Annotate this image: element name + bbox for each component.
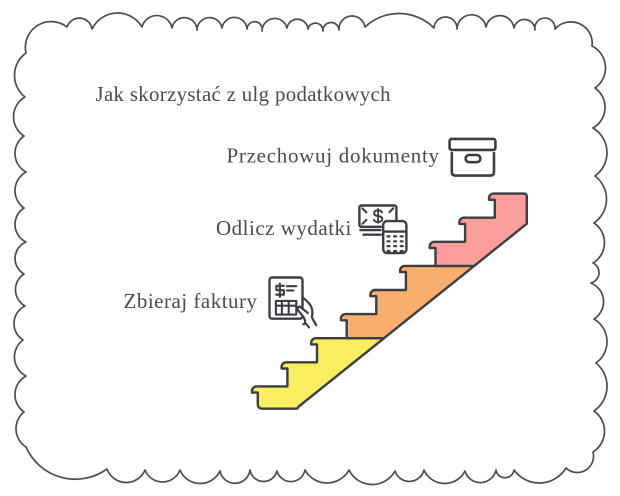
svg-text:Zbieraj faktury: Zbieraj faktury <box>124 289 258 313</box>
svg-text:Przechowuj dokumenty: Przechowuj dokumenty <box>227 144 440 168</box>
svg-text:Jak skorzystać z ulg podatkowy: Jak skorzystać z ulg podatkowych <box>96 83 392 106</box>
svg-text:Odlicz wydatki: Odlicz wydatki <box>216 216 352 240</box>
